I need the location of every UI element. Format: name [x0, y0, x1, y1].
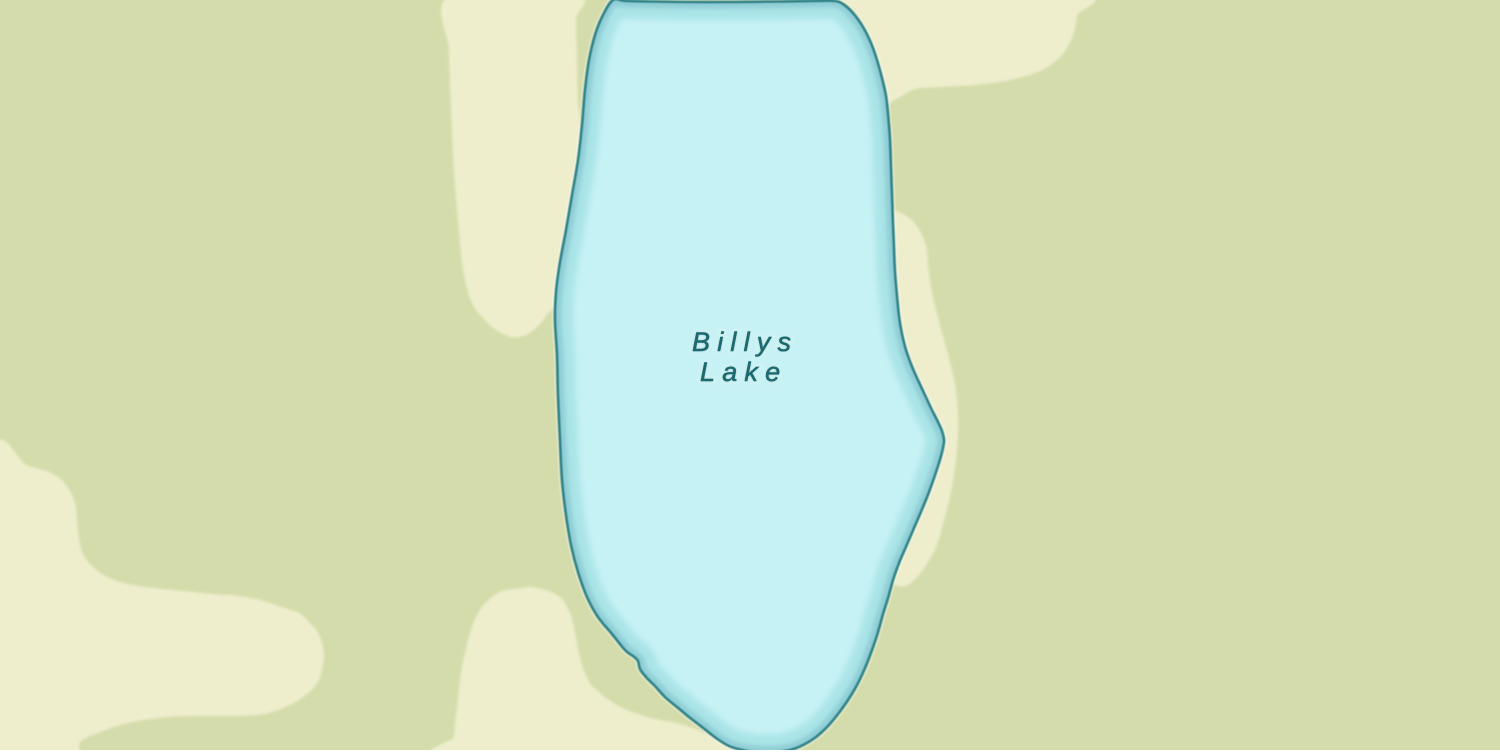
- svg-text:Lake: Lake: [700, 357, 787, 387]
- svg-text:Billys: Billys: [692, 327, 798, 357]
